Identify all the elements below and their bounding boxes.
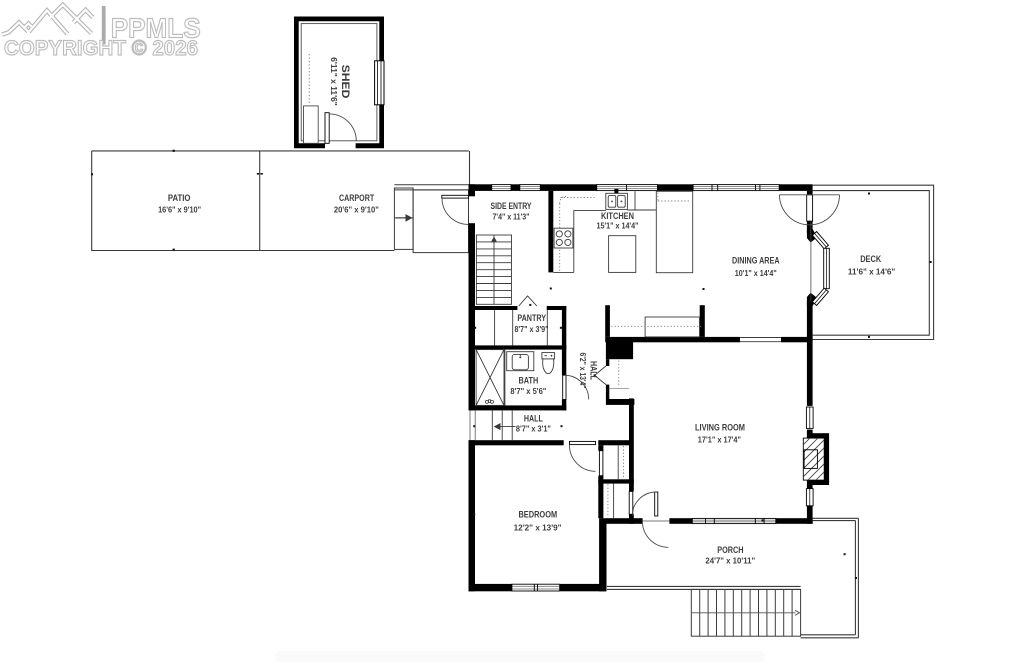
svg-text:16'6" x 9'10": 16'6" x 9'10" [158, 205, 201, 215]
svg-text:COPYRIGHT © 2026: COPYRIGHT © 2026 [4, 37, 198, 60]
svg-text:HALL: HALL [524, 413, 543, 423]
svg-text:17'1" x 17'4": 17'1" x 17'4" [698, 435, 741, 445]
svg-text:CARPORT: CARPORT [339, 193, 375, 203]
svg-text:24'7" x 10'11": 24'7" x 10'11" [705, 556, 755, 566]
svg-text:8'7" x 5'6": 8'7" x 5'6" [510, 386, 546, 396]
svg-text:BEDROOM: BEDROOM [518, 509, 557, 519]
svg-text:DECK: DECK [860, 254, 881, 264]
svg-text:6'11" x 11'6": 6'11" x 11'6" [329, 57, 339, 106]
svg-text:BATH: BATH [519, 375, 539, 385]
svg-text:20'6" x 9'10": 20'6" x 9'10" [334, 205, 379, 215]
svg-text:PANTRY: PANTRY [517, 313, 546, 323]
svg-text:DINING AREA: DINING AREA [732, 256, 780, 266]
svg-text:7'4" x 11'3": 7'4" x 11'3" [493, 212, 530, 222]
svg-text:8'7" x 3'1": 8'7" x 3'1" [516, 423, 551, 433]
svg-text:LIVING ROOM: LIVING ROOM [695, 422, 745, 432]
svg-text:11'6" x 14'6": 11'6" x 14'6" [848, 266, 895, 276]
svg-text:HALL: HALL [588, 361, 598, 380]
svg-text:15'1" x 14'4": 15'1" x 14'4" [597, 221, 639, 231]
svg-text:12'2" x 13'9": 12'2" x 13'9" [514, 522, 562, 532]
svg-text:SHED: SHED [339, 65, 351, 99]
svg-text:PORCH: PORCH [717, 545, 743, 555]
svg-text:SIDE ENTRY: SIDE ENTRY [491, 201, 532, 211]
svg-text:6'2" x 13'4": 6'2" x 13'4" [578, 353, 588, 389]
svg-text:PATIO: PATIO [168, 193, 191, 203]
svg-text:8'7" x 3'9": 8'7" x 3'9" [515, 324, 549, 334]
svg-text:10'1" x 14'4": 10'1" x 14'4" [735, 268, 777, 278]
svg-text:KITCHEN: KITCHEN [601, 211, 634, 221]
